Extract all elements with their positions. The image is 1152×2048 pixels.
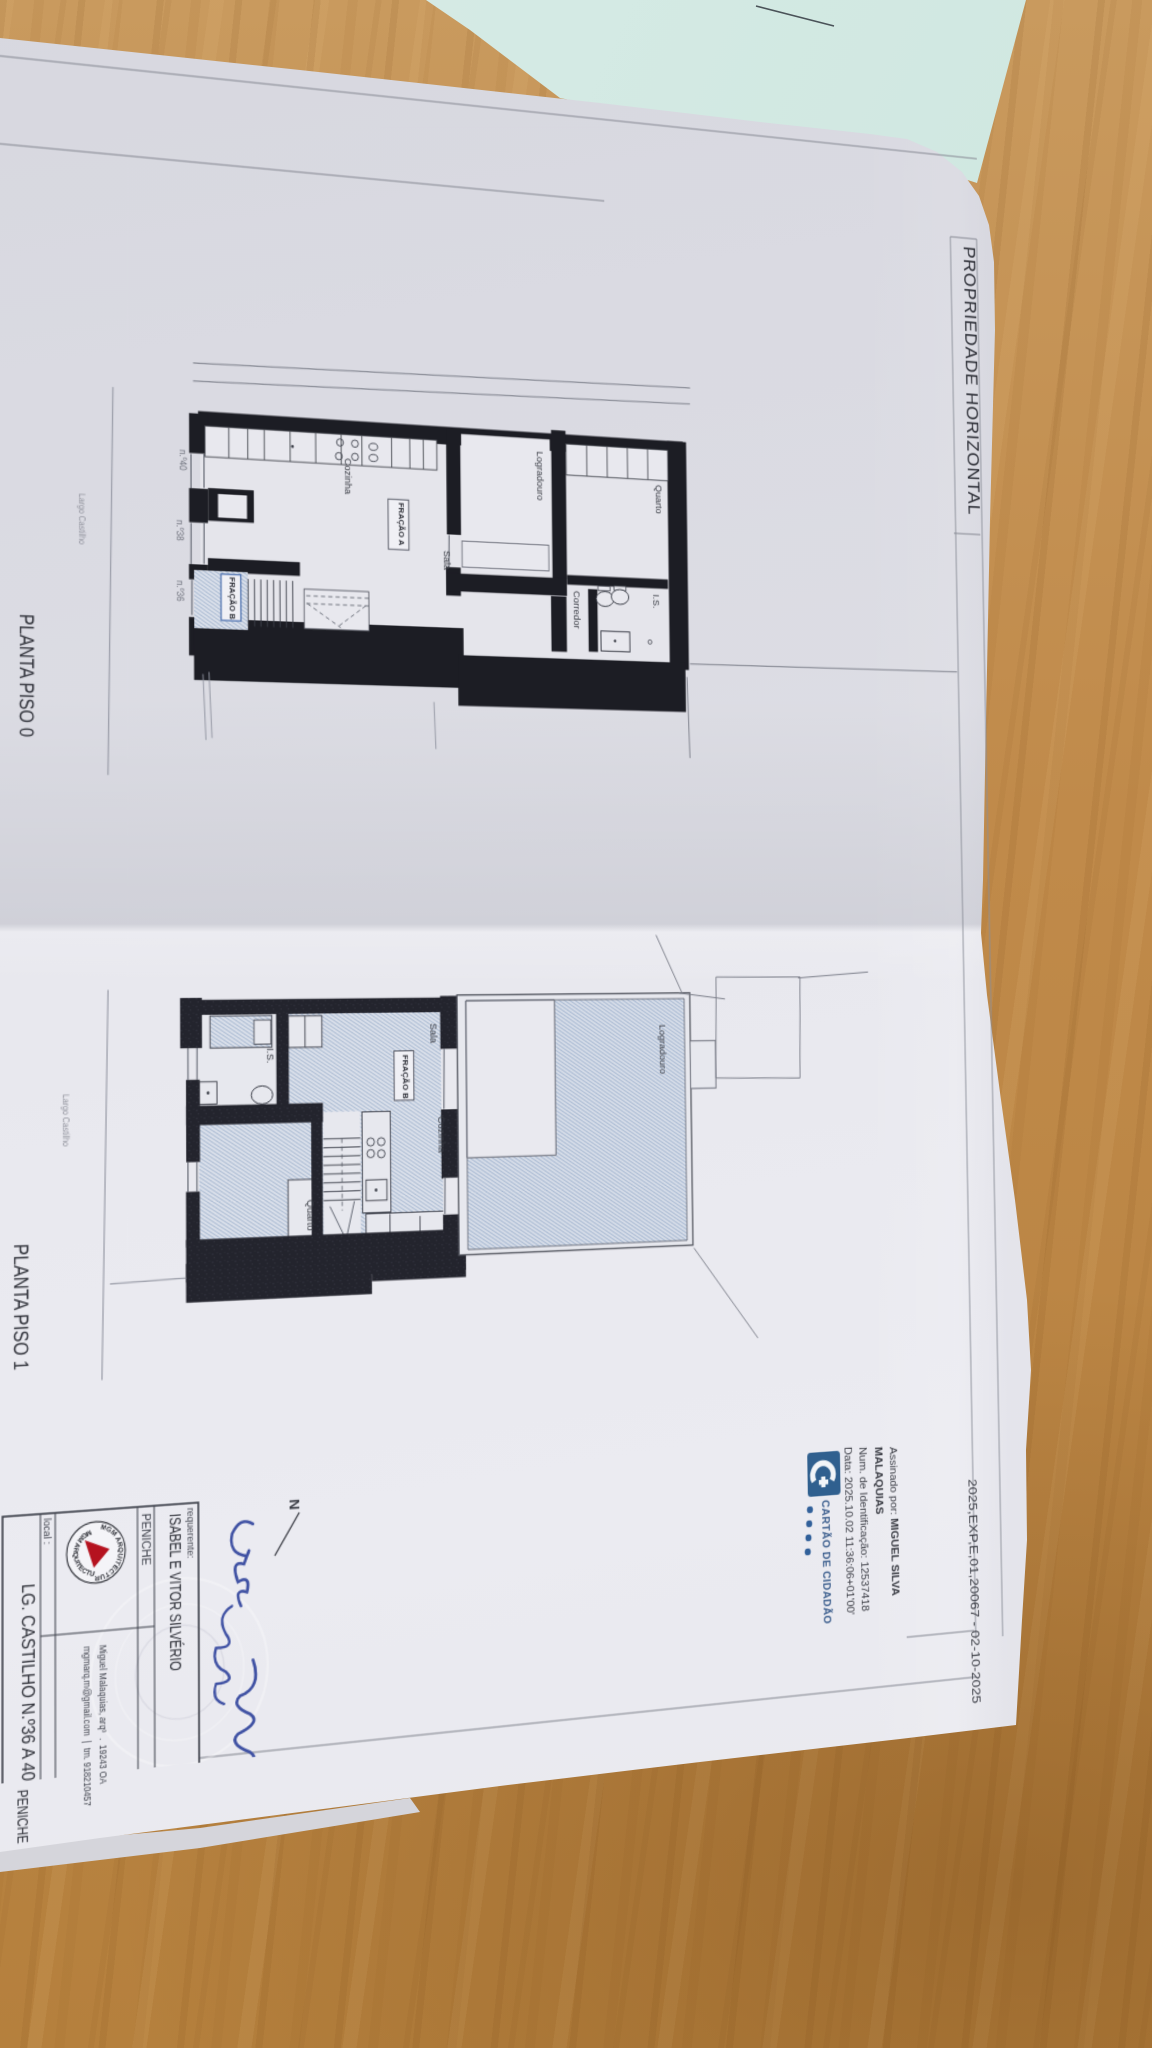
svg-text:MGM ARQUITECTURA: MGM ARQUITECTURA <box>69 45 1016 1580</box>
svg-text:MGM ARQUITECTURA: MGM ARQUITECTURA <box>92 48 1016 1581</box>
